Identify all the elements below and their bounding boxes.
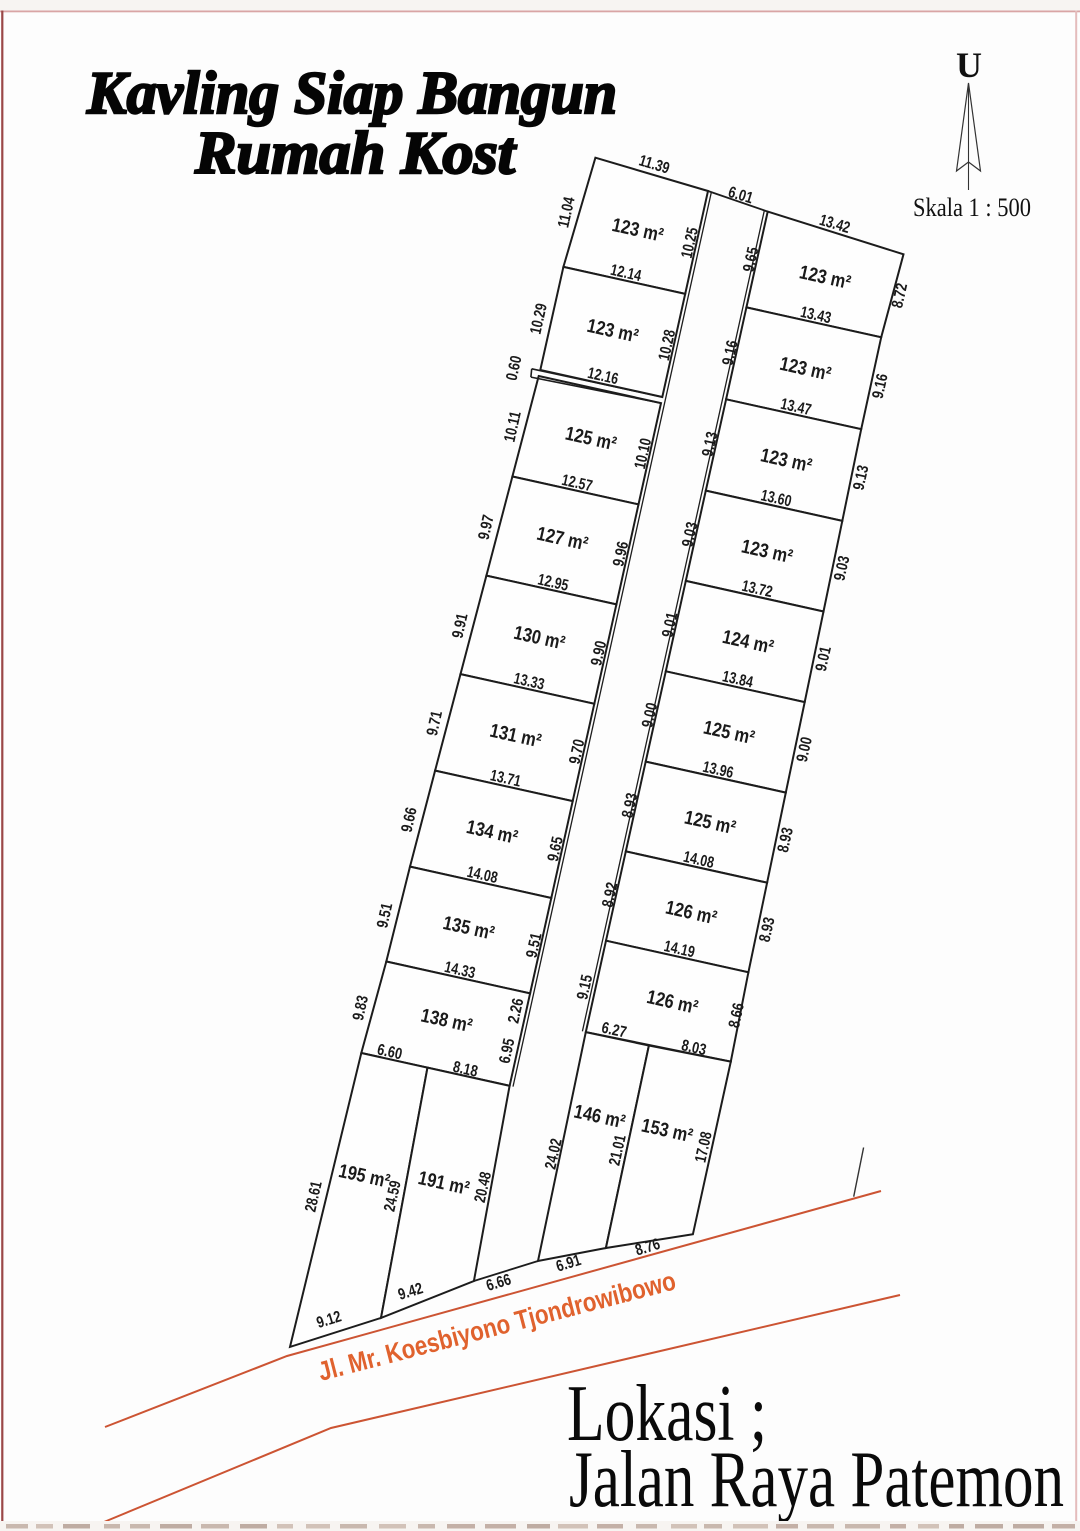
svg-text:U: U: [956, 45, 982, 85]
svg-text:Skala 1 : 500: Skala 1 : 500: [913, 193, 1031, 222]
svg-text:Rumah Kost: Rumah Kost: [194, 120, 517, 186]
svg-text:Jalan Raya Patemon: Jalan Raya Patemon: [569, 1436, 1064, 1524]
svg-text:Kavling Siap Bangun: Kavling Siap Bangun: [86, 60, 617, 126]
